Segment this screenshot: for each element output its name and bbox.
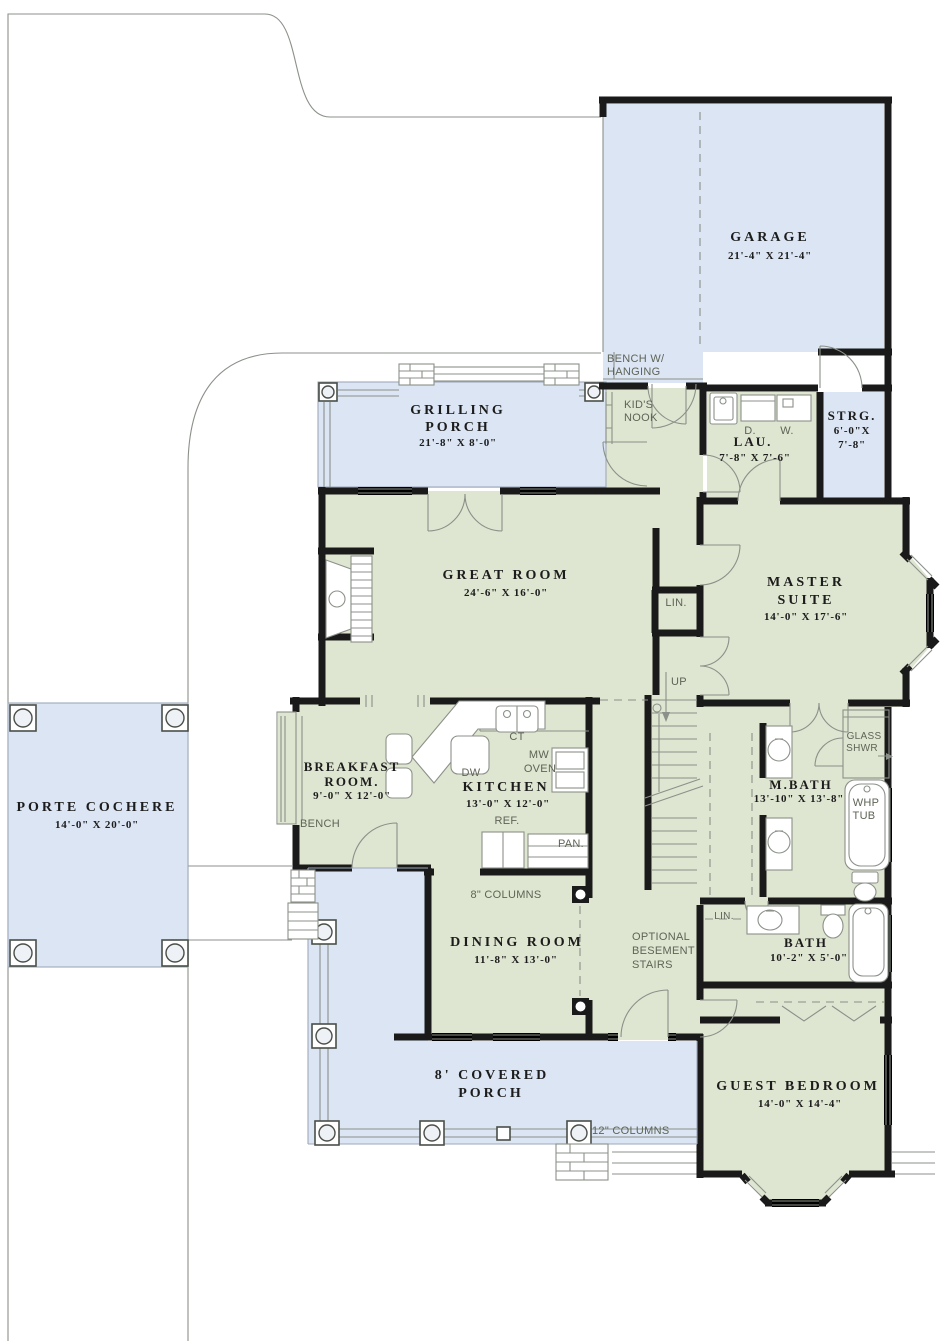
label-covered-porch-2: PORCH: [458, 1086, 524, 1102]
label-guest-bedroom-dims: 14'-0" X 14'-4": [758, 1098, 842, 1110]
label-whirlpool: WHP: [853, 797, 880, 809]
room-garage: [603, 104, 884, 352]
mw-oven-icon: [552, 748, 588, 792]
label-bench-hanging: BENCH W/: [607, 353, 664, 365]
label-cooktop: CT: [509, 731, 524, 743]
label-kids-nook-2: NOOK: [624, 412, 658, 424]
label-master-suite: MASTER: [767, 575, 845, 591]
label-microwave-2: OVEN: [524, 763, 556, 775]
toilet-icon: [852, 872, 878, 883]
washer-icon: [777, 395, 811, 421]
label-great-room: GREAT ROOM: [442, 568, 569, 584]
label-great-room-dims: 24'-6" X 16'-0": [464, 587, 548, 599]
dryer-icon: [741, 395, 775, 421]
label-kids-nook: KID'S: [624, 399, 653, 411]
label-basement-stairs-3: STAIRS: [632, 959, 673, 971]
whirlpool-tub-icon: [845, 780, 889, 870]
label-master-bath: M.BATH: [769, 777, 832, 793]
label-pantry: PAN.: [558, 838, 584, 850]
label-storage-dims1: 6'-0"X: [834, 425, 871, 437]
label-storage-dims2: 7'-8": [838, 439, 866, 451]
label-breakfast-2: ROOM.: [324, 774, 379, 790]
label-breakfast: BREAKFAST: [304, 759, 401, 775]
label-guest-bedroom: GUEST BEDROOM: [716, 1079, 880, 1095]
label-basement-stairs-2: BESEMENT: [632, 945, 695, 957]
label-columns-8: 8" COLUMNS: [470, 889, 541, 901]
label-columns-12: 12" COLUMNS: [592, 1125, 670, 1137]
label-garage-dims: 21'-4" X 21'-4": [728, 250, 812, 262]
label-master-suite-dims: 14'-0" X 17'-6": [764, 611, 848, 623]
label-master-suite-2: SUITE: [777, 593, 834, 609]
label-dining-dims: 11'-8" X 13'-0": [474, 954, 558, 966]
label-grilling-porch: GRILLING: [410, 403, 506, 419]
label-kitchen-dims: 13'-0" X 12'-0": [466, 798, 550, 810]
label-dryer: D.: [744, 425, 756, 437]
label-microwave: MW: [529, 749, 549, 761]
label-glass-shower: GLASS: [847, 731, 882, 742]
label-basement-stairs: OPTIONAL: [632, 931, 690, 943]
label-dishwasher: DW: [462, 767, 481, 779]
label-storage: STRG.: [828, 408, 877, 424]
label-kitchen: KITCHEN: [462, 780, 549, 796]
label-bath: BATH: [784, 935, 828, 951]
label-bath-dims: 10'-2" X 5'-0": [770, 952, 848, 964]
label-laundry-dims: 7'-8" X 7'-6": [719, 452, 791, 464]
label-dining: DINING ROOM: [450, 935, 584, 951]
label-up: UP: [671, 676, 687, 688]
label-grilling-porch-2: PORCH: [425, 420, 491, 436]
label-linen-lower: LIN.: [714, 911, 734, 922]
label-bench: BENCH: [300, 818, 340, 830]
fireplace-icon: [326, 556, 372, 642]
floor-plan-canvas: GARAGE 21'-4" X 21'-4" GRILLING PORCH 21…: [0, 0, 950, 1341]
vanity-icon: [766, 726, 792, 778]
label-grilling-porch-dims: 21'-8" X 8'-0": [419, 437, 497, 449]
vanity-icon: [766, 818, 792, 870]
label-garage: GARAGE: [730, 230, 809, 246]
label-linen-upper: LIN.: [665, 597, 686, 609]
floor-plan-drawing: [0, 0, 950, 1341]
label-whirlpool-2: TUB: [853, 810, 876, 822]
label-porte-cochere-dims: 14'-0" X 20'-0": [55, 819, 139, 831]
label-glass-shower-2: SHWR: [846, 743, 878, 754]
room-porte-cochere: [8, 703, 188, 967]
laundry-fixtures: [710, 393, 811, 424]
label-washer: W.: [780, 425, 793, 437]
label-bench-hanging-2: HANGING: [607, 366, 660, 378]
bathtub-icon: [849, 904, 888, 982]
label-master-bath-dims: 13'-10" X 13'-8": [754, 793, 844, 805]
label-covered-porch: 8' COVERED: [435, 1068, 549, 1084]
label-refrigerator: REF.: [494, 815, 519, 827]
label-porte-cochere: PORTE COCHERE: [16, 800, 177, 816]
label-breakfast-dims: 9'-0" X 12'-0": [313, 790, 391, 802]
